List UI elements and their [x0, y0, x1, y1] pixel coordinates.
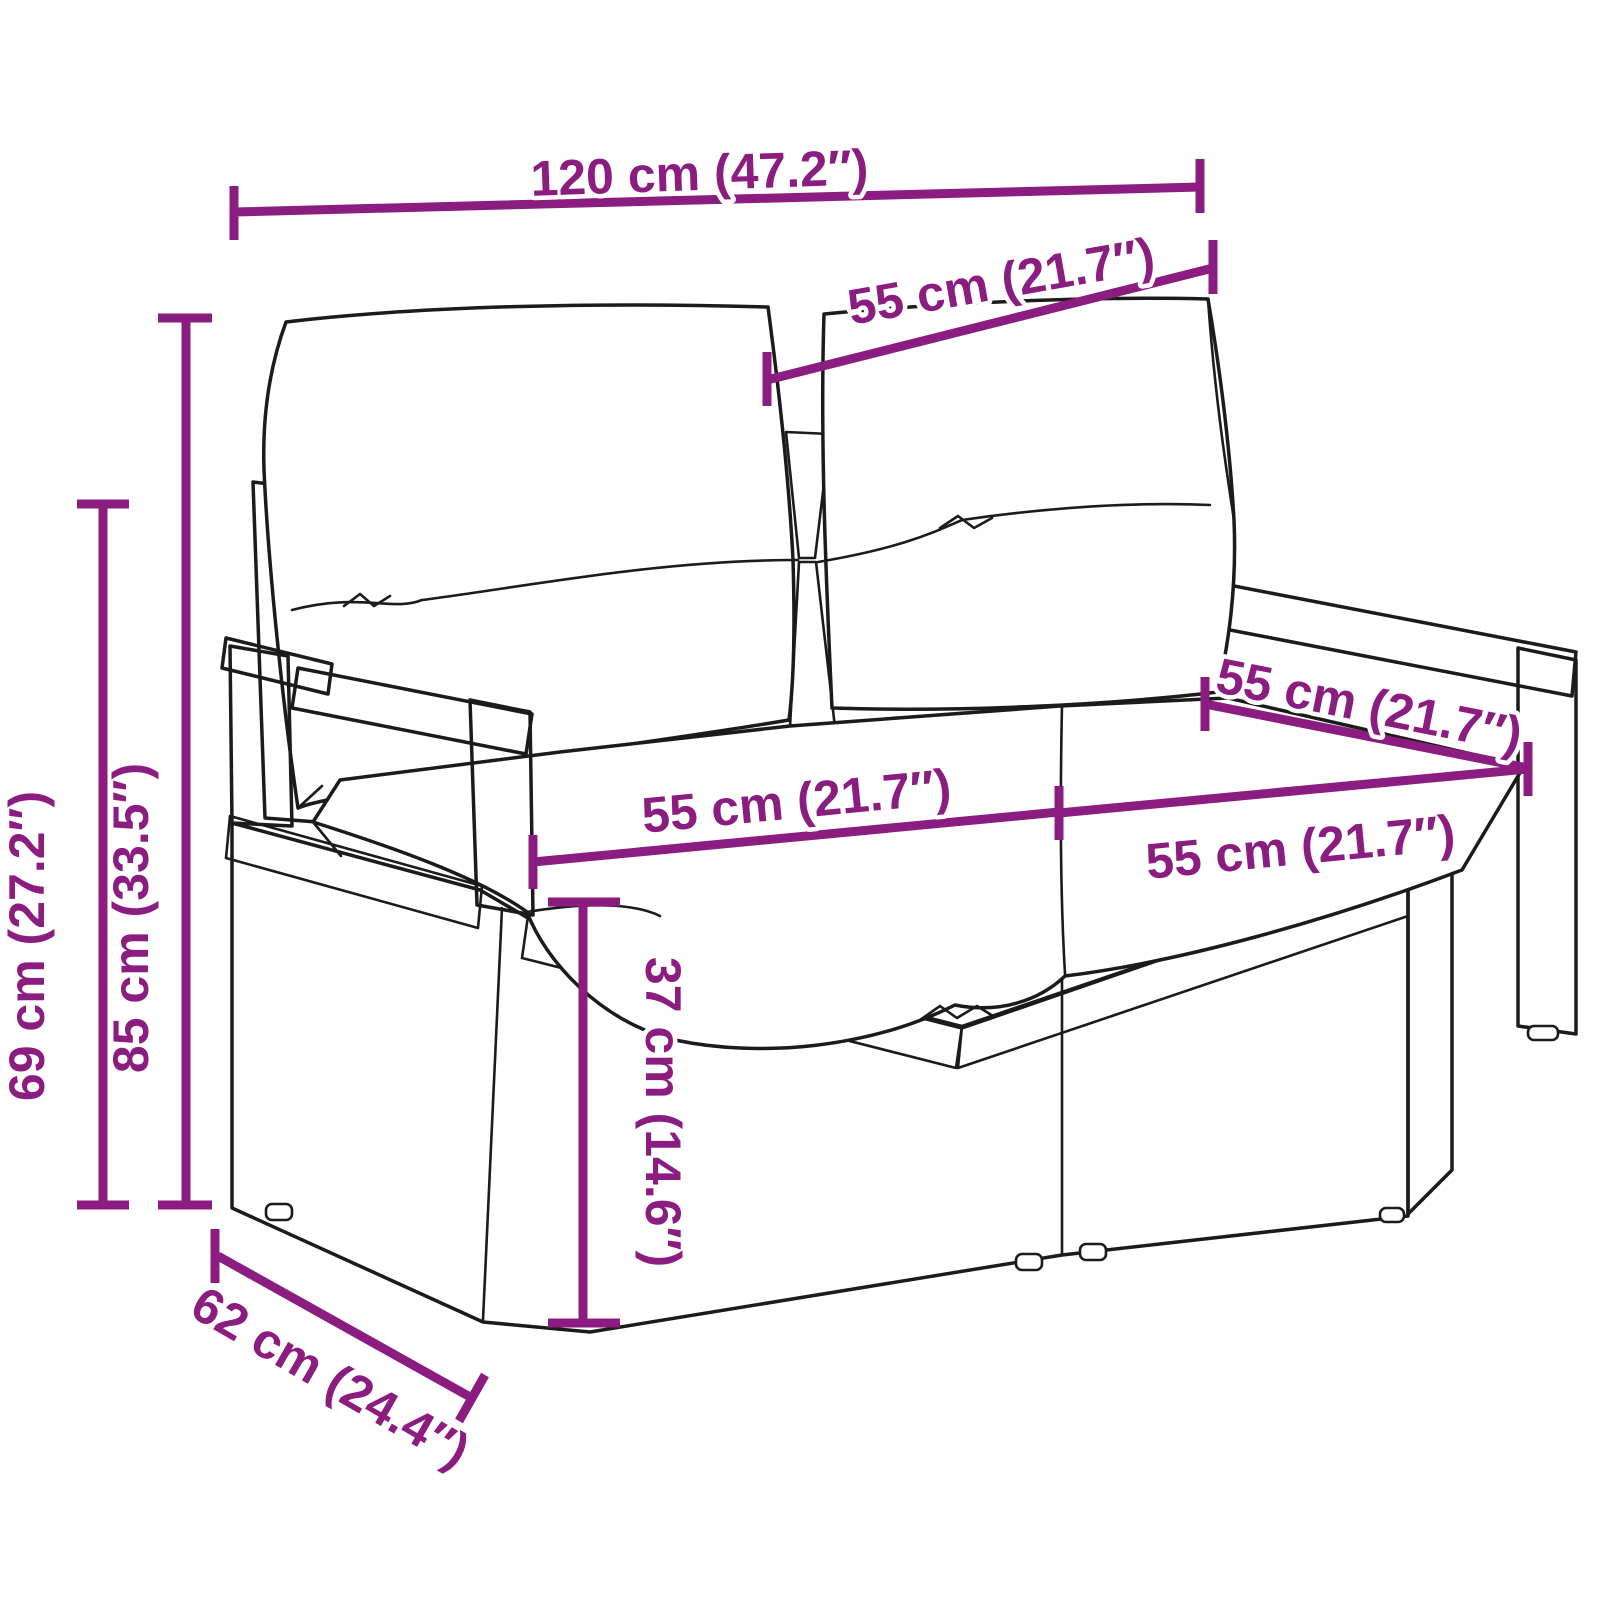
diagram-canvas: 120 cm (47.2″) 55 cm (21.7″) 85 cm (33.5… [0, 0, 1600, 1600]
back-cushion-right [818, 298, 1235, 709]
dim-label-seat-height: 37 cm (14.6″) [635, 957, 691, 1267]
dim-total-height: 85 cm (33.5″) [103, 318, 212, 1205]
base-foot [1080, 1244, 1106, 1260]
base-corner-edge [483, 908, 502, 1320]
dim-label-total-width: 120 cm (47.2″) [530, 139, 870, 207]
dim-total-width: 120 cm (47.2″) [234, 139, 1200, 240]
bench-dimension-diagram: 120 cm (47.2″) 55 cm (21.7″) 85 cm (33.5… [0, 0, 1600, 1600]
dim-label-armrest-height: 69 cm (27.2″) [0, 791, 55, 1101]
base-right-side [1408, 858, 1452, 1214]
dim-total-depth: 62 cm (24.4″) [182, 1229, 485, 1479]
right-post-foot [1528, 1026, 1558, 1040]
base-foot [1380, 1208, 1404, 1222]
base-foot [266, 1204, 292, 1220]
back-right-post [1518, 648, 1576, 1034]
base-foot [1016, 1254, 1042, 1270]
dim-label-total-height: 85 cm (33.5″) [103, 763, 159, 1073]
